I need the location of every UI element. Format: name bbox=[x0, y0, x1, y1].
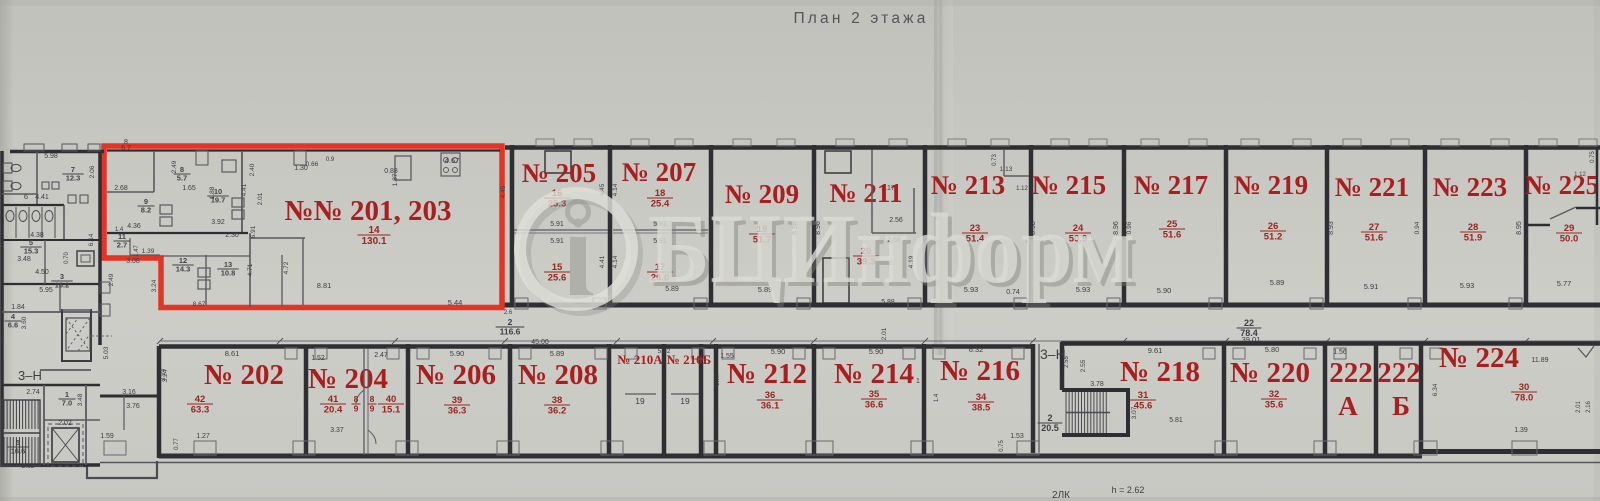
svg-text:0.77: 0.77 bbox=[174, 438, 180, 450]
svg-text:12.3: 12.3 bbox=[66, 174, 81, 183]
svg-text:36.2: 36.2 bbox=[548, 406, 567, 417]
svg-text:4.67: 4.67 bbox=[445, 156, 460, 165]
svg-text:3.07: 3.07 bbox=[1131, 406, 1138, 419]
svg-text:4.41: 4.41 bbox=[241, 183, 248, 196]
svg-text:8.93: 8.93 bbox=[1328, 221, 1335, 235]
svg-text:3.78: 3.78 bbox=[1090, 381, 1104, 388]
svg-text:1.65: 1.65 bbox=[182, 185, 196, 192]
svg-text:2.62: 2.62 bbox=[22, 463, 35, 470]
svg-text:БЦИнформ: БЦИнформ bbox=[648, 193, 1135, 304]
svg-text:2.40: 2.40 bbox=[249, 163, 256, 176]
svg-text:34: 34 bbox=[976, 392, 987, 403]
svg-text:3.24: 3.24 bbox=[151, 279, 158, 292]
svg-text:2.01: 2.01 bbox=[1576, 401, 1582, 413]
svg-text:0.77: 0.77 bbox=[715, 374, 721, 386]
svg-text:№ 217: № 217 bbox=[1134, 170, 1208, 200]
svg-text:2: 2 bbox=[1047, 413, 1052, 423]
svg-text:14: 14 bbox=[368, 225, 380, 236]
svg-text:1.84: 1.84 bbox=[11, 304, 25, 311]
svg-text:1: 1 bbox=[916, 378, 920, 385]
svg-text:№ 220: № 220 bbox=[1230, 357, 1310, 389]
svg-text:3.92: 3.92 bbox=[211, 219, 225, 226]
svg-text:8: 8 bbox=[370, 394, 375, 404]
svg-text:3.16: 3.16 bbox=[122, 389, 136, 396]
svg-text:63.3: 63.3 bbox=[191, 405, 210, 416]
svg-text:5.7: 5.7 bbox=[177, 174, 187, 183]
svg-text:38.5: 38.5 bbox=[972, 403, 991, 414]
svg-text:8.81: 8.81 bbox=[317, 281, 332, 290]
svg-text:36.6: 36.6 bbox=[865, 400, 884, 411]
svg-text:2.55: 2.55 bbox=[1080, 359, 1087, 372]
svg-text:Б: Б bbox=[1392, 391, 1410, 421]
svg-text:5.77: 5.77 bbox=[1557, 279, 1572, 288]
svg-text:29: 29 bbox=[1564, 223, 1575, 234]
svg-text:15.3: 15.3 bbox=[24, 247, 39, 256]
svg-text:№№ 201, 203: №№ 201, 203 bbox=[284, 195, 451, 227]
svg-text:№ 216: № 216 bbox=[940, 355, 1020, 387]
svg-text:№ 207: № 207 bbox=[622, 157, 696, 187]
svg-text:5.91: 5.91 bbox=[550, 221, 564, 228]
svg-text:10.8: 10.8 bbox=[221, 269, 236, 278]
svg-text:9.61: 9.61 bbox=[1148, 346, 1163, 355]
svg-text:51.6: 51.6 bbox=[1365, 233, 1384, 244]
svg-text:3.37: 3.37 bbox=[330, 427, 344, 434]
svg-text:3.48: 3.48 bbox=[17, 256, 31, 263]
svg-text:3.60: 3.60 bbox=[21, 316, 28, 329]
svg-text:1.52: 1.52 bbox=[311, 355, 325, 362]
svg-text:№ 225: № 225 bbox=[1525, 170, 1599, 200]
svg-text:2.01: 2.01 bbox=[881, 327, 888, 340]
svg-text:0.9: 0.9 bbox=[326, 157, 335, 163]
svg-text:0.73: 0.73 bbox=[992, 154, 998, 166]
svg-text:28: 28 bbox=[1468, 222, 1479, 233]
svg-text:4.14: 4.14 bbox=[612, 255, 619, 268]
svg-text:№ 210А: № 210А bbox=[617, 352, 663, 367]
svg-text:31: 31 bbox=[1138, 390, 1149, 401]
svg-text:2.06: 2.06 bbox=[89, 165, 96, 178]
svg-text:5.81: 5.81 bbox=[1169, 417, 1183, 424]
svg-text:0.70: 0.70 bbox=[64, 252, 70, 264]
svg-text:1.87: 1.87 bbox=[392, 173, 399, 186]
svg-text:№ 218: № 218 bbox=[1120, 356, 1200, 388]
svg-text:1.39: 1.39 bbox=[142, 248, 155, 255]
svg-text:27: 27 bbox=[1369, 222, 1380, 233]
svg-text:20.5: 20.5 bbox=[1041, 423, 1059, 433]
svg-text:1.12: 1.12 bbox=[1574, 172, 1586, 178]
svg-text:2.02: 2.02 bbox=[58, 420, 72, 427]
svg-text:4.36: 4.36 bbox=[127, 223, 141, 230]
svg-text:35.6: 35.6 bbox=[1265, 400, 1284, 411]
svg-text:35: 35 bbox=[869, 389, 880, 400]
svg-text:36: 36 bbox=[765, 390, 776, 401]
svg-text:1.47: 1.47 bbox=[134, 245, 140, 257]
svg-text:130.1: 130.1 bbox=[361, 236, 386, 247]
svg-text:5.93: 5.93 bbox=[1460, 281, 1475, 290]
svg-text:40: 40 bbox=[386, 394, 397, 405]
svg-text:1.4: 1.4 bbox=[934, 393, 940, 402]
svg-text:6.6: 6.6 bbox=[8, 321, 18, 330]
svg-text:№ 204: № 204 bbox=[308, 363, 388, 395]
svg-text:19: 19 bbox=[680, 396, 690, 406]
svg-text:51.9: 51.9 bbox=[1464, 233, 1483, 244]
svg-text:№ 212: № 212 bbox=[727, 358, 807, 390]
svg-text:1.13: 1.13 bbox=[1000, 166, 1013, 173]
svg-text:№ 206: № 206 bbox=[416, 359, 496, 391]
svg-text:6.32: 6.32 bbox=[969, 345, 984, 354]
svg-text:5.95: 5.95 bbox=[39, 287, 53, 294]
svg-text:4.71: 4.71 bbox=[247, 263, 254, 276]
svg-text:2.6: 2.6 bbox=[504, 310, 513, 316]
svg-text:4.41: 4.41 bbox=[35, 194, 49, 201]
svg-text:39: 39 bbox=[452, 395, 463, 406]
svg-text:22: 22 bbox=[1244, 318, 1254, 328]
svg-text:№ 202: № 202 bbox=[204, 359, 284, 391]
svg-text:5.03: 5.03 bbox=[103, 346, 110, 359]
svg-text:1.56: 1.56 bbox=[1333, 349, 1347, 356]
svg-text:2ЛК: 2ЛК bbox=[1052, 490, 1070, 501]
svg-text:42: 42 bbox=[195, 394, 206, 405]
svg-text:0.75: 0.75 bbox=[1590, 151, 1596, 163]
svg-text:2.7: 2.7 bbox=[117, 241, 127, 250]
svg-text:1.55: 1.55 bbox=[720, 353, 734, 360]
svg-text:78.0: 78.0 bbox=[1515, 393, 1534, 404]
svg-text:№ 221: № 221 bbox=[1335, 172, 1409, 202]
svg-text:3–Н: 3–Н bbox=[1040, 346, 1066, 362]
svg-text:1.4: 1.4 bbox=[115, 227, 124, 233]
svg-text:№ 214: № 214 bbox=[834, 358, 914, 390]
svg-text:222: 222 bbox=[1329, 357, 1373, 389]
svg-text:5.89: 5.89 bbox=[550, 349, 565, 358]
svg-text:4.50: 4.50 bbox=[35, 269, 49, 276]
svg-text:4.41: 4.41 bbox=[599, 255, 606, 268]
svg-text:№ 210Б: № 210Б bbox=[667, 352, 711, 367]
svg-text:6.34: 6.34 bbox=[1432, 383, 1439, 396]
svg-text:38: 38 bbox=[552, 395, 563, 406]
svg-text:2.30: 2.30 bbox=[225, 232, 239, 239]
svg-text:7.0: 7.0 bbox=[62, 399, 72, 408]
svg-text:1.88: 1.88 bbox=[209, 186, 216, 199]
svg-text:А: А bbox=[1338, 391, 1358, 421]
svg-text:16.2: 16.2 bbox=[55, 281, 70, 290]
svg-text:0.75: 0.75 bbox=[999, 440, 1005, 452]
svg-text:План 2 этажа: План 2 этажа bbox=[793, 10, 928, 27]
svg-text:9: 9 bbox=[354, 404, 359, 414]
svg-text:2.49: 2.49 bbox=[171, 160, 178, 173]
svg-text:0.94: 0.94 bbox=[1414, 221, 1421, 234]
svg-text:5.91: 5.91 bbox=[1364, 282, 1379, 291]
svg-text:h = 2.62: h = 2.62 bbox=[1112, 485, 1145, 495]
svg-text:2.49: 2.49 bbox=[108, 273, 115, 286]
svg-text:8.67: 8.67 bbox=[193, 301, 206, 308]
svg-text:6.14: 6.14 bbox=[88, 233, 95, 246]
svg-text:14.3: 14.3 bbox=[176, 265, 191, 274]
svg-text:15.1: 15.1 bbox=[382, 405, 401, 416]
svg-text:222: 222 bbox=[1377, 357, 1421, 389]
svg-text:6: 6 bbox=[24, 192, 28, 201]
svg-text:3.08: 3.08 bbox=[126, 258, 140, 265]
svg-text:3.24: 3.24 bbox=[162, 369, 169, 382]
svg-text:16.6: 16.6 bbox=[11, 447, 26, 456]
svg-text:2.74: 2.74 bbox=[26, 389, 40, 396]
svg-text:1.59: 1.59 bbox=[100, 433, 114, 440]
svg-text:51.2: 51.2 bbox=[1264, 232, 1283, 243]
svg-text:5.90: 5.90 bbox=[771, 347, 786, 356]
svg-text:1.17: 1.17 bbox=[881, 185, 895, 192]
svg-text:26: 26 bbox=[1268, 221, 1279, 232]
svg-text:№ 224: № 224 bbox=[1439, 342, 1519, 374]
svg-text:9: 9 bbox=[370, 404, 375, 414]
svg-text:15: 15 bbox=[552, 262, 563, 273]
svg-text:1.12: 1.12 bbox=[1016, 186, 1028, 192]
svg-text:2.47: 2.47 bbox=[374, 352, 388, 359]
svg-text:2: 2 bbox=[508, 317, 513, 327]
svg-text:41: 41 bbox=[328, 394, 339, 405]
svg-text:5.80: 5.80 bbox=[1265, 345, 1280, 354]
svg-text:116.6: 116.6 bbox=[500, 327, 521, 337]
svg-text:30: 30 bbox=[1519, 382, 1530, 393]
svg-text:32: 32 bbox=[1269, 389, 1280, 400]
svg-text:4.72: 4.72 bbox=[283, 261, 290, 274]
svg-text:5.98: 5.98 bbox=[44, 153, 58, 160]
svg-text:1.27: 1.27 bbox=[196, 433, 210, 440]
svg-text:36.3: 36.3 bbox=[448, 406, 467, 417]
svg-text:11.89: 11.89 bbox=[1532, 357, 1549, 364]
svg-text:8.61: 8.61 bbox=[225, 349, 240, 358]
svg-text:1.30: 1.30 bbox=[294, 165, 308, 172]
svg-text:8.2: 8.2 bbox=[141, 206, 151, 215]
svg-text:№ 223: № 223 bbox=[1433, 172, 1507, 202]
svg-text:2.68: 2.68 bbox=[114, 185, 128, 192]
svg-text:25.6: 25.6 bbox=[548, 273, 567, 284]
svg-text:№ 208: № 208 bbox=[518, 359, 598, 391]
svg-text:5.89: 5.89 bbox=[1270, 278, 1285, 287]
svg-text:5.90: 5.90 bbox=[869, 347, 884, 356]
svg-text:№ 205: № 205 bbox=[522, 158, 596, 188]
svg-text:6.7: 6.7 bbox=[121, 145, 131, 152]
svg-text:51.6: 51.6 bbox=[1163, 230, 1182, 241]
svg-text:3–Н: 3–Н bbox=[18, 368, 42, 383]
svg-text:20.4: 20.4 bbox=[324, 405, 343, 416]
svg-text:1.53: 1.53 bbox=[1010, 433, 1024, 440]
svg-text:3.76: 3.76 bbox=[126, 403, 140, 410]
svg-text:5.44: 5.44 bbox=[448, 298, 463, 307]
svg-text:4.45: 4.45 bbox=[500, 185, 507, 198]
svg-text:3.48: 3.48 bbox=[77, 393, 84, 406]
svg-text:8.95: 8.95 bbox=[1516, 221, 1523, 235]
svg-text:19: 19 bbox=[635, 396, 645, 406]
svg-text:2.16: 2.16 bbox=[1586, 401, 1592, 413]
svg-text:5.91: 5.91 bbox=[550, 238, 564, 245]
svg-text:8: 8 bbox=[354, 394, 359, 404]
svg-text:36.1: 36.1 bbox=[761, 401, 780, 412]
svg-text:6.91: 6.91 bbox=[250, 225, 257, 238]
svg-text:2.55: 2.55 bbox=[1064, 356, 1070, 368]
svg-text:1.39: 1.39 bbox=[1514, 427, 1528, 434]
svg-text:5.90: 5.90 bbox=[450, 349, 465, 358]
svg-text:№ 219: № 219 bbox=[1234, 170, 1308, 200]
svg-text:25: 25 bbox=[1167, 219, 1178, 230]
svg-text:5.90: 5.90 bbox=[1157, 286, 1172, 295]
svg-text:2.01: 2.01 bbox=[257, 192, 264, 205]
svg-text:4.14: 4.14 bbox=[612, 183, 619, 196]
svg-text:50.0: 50.0 bbox=[1560, 234, 1579, 245]
